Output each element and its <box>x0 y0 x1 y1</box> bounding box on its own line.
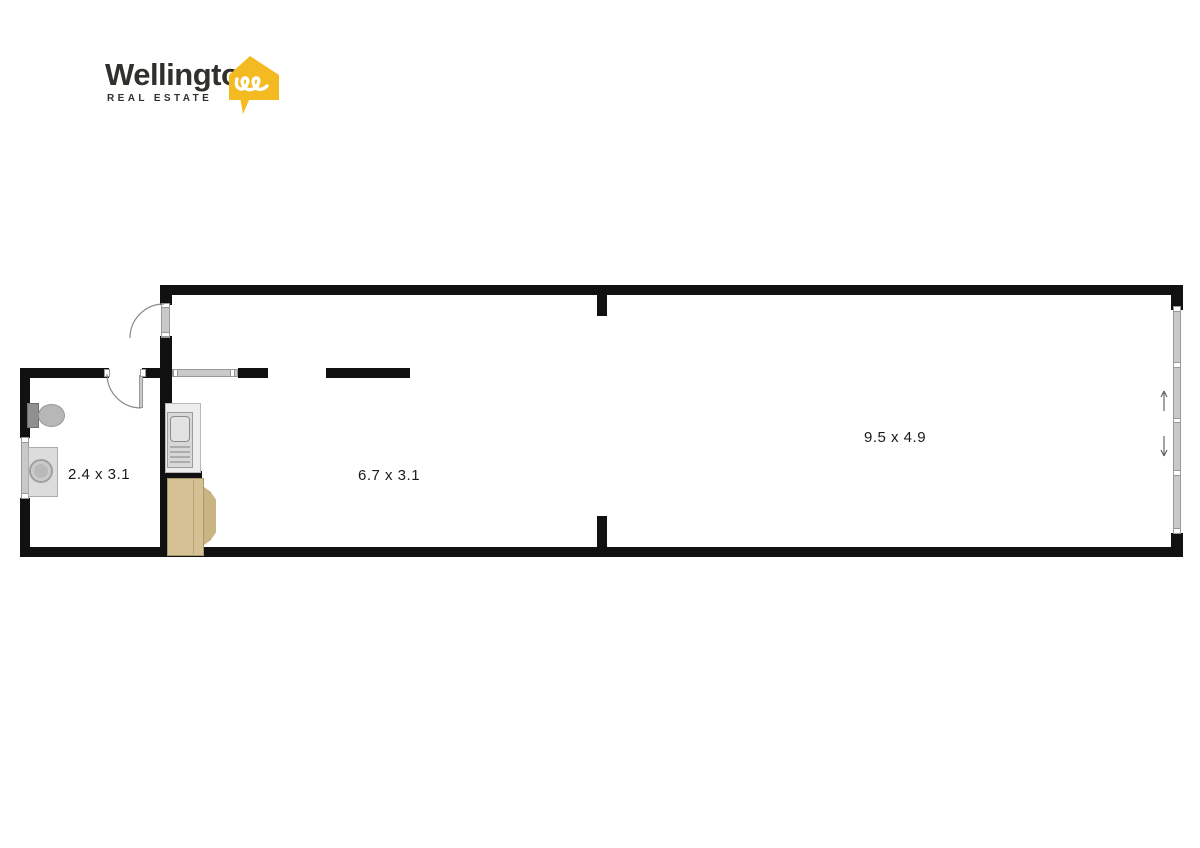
window-mullion <box>1173 528 1181 534</box>
exterior-wall-left-upper <box>160 285 172 305</box>
toilet-bowl <box>38 404 65 427</box>
partition-stub-bottom <box>597 516 607 547</box>
room-dimensions-label: 6.7 x 3.1 <box>358 467 420 484</box>
window-mullion <box>1173 470 1181 476</box>
entry-door-arc <box>130 304 164 338</box>
window-mullion <box>173 369 178 377</box>
kitchen-stove-grill <box>170 446 190 466</box>
kitchen-sink <box>170 416 190 442</box>
annex-wall-top-right <box>142 368 172 378</box>
sofa <box>167 478 204 556</box>
sliding-direction-arrows <box>1161 391 1167 456</box>
floor-plan: 2.4 x 3.1 6.7 x 3.1 9.5 x 4.9 <box>0 0 1200 848</box>
window-mullion <box>1173 306 1181 312</box>
sofa-cushion-line <box>193 480 194 554</box>
interior-wall-segment-a <box>238 368 268 378</box>
annex-wall-left-lower <box>20 498 30 557</box>
window-interior-wall <box>172 369 238 377</box>
door-hinge <box>104 369 110 377</box>
exterior-wall-top <box>160 285 1183 295</box>
washing-machine-drum <box>34 464 48 478</box>
bathroom-door-leaf <box>139 375 143 408</box>
door-hinge <box>161 332 170 337</box>
window-mullion <box>230 369 235 377</box>
door-hinge <box>140 369 146 377</box>
room-dimensions-label: 2.4 x 3.1 <box>68 466 130 483</box>
bathroom-door-arc <box>107 374 141 408</box>
partition-stub-top <box>597 295 607 316</box>
window-mullion <box>21 437 29 443</box>
interior-wall-segment-b <box>326 368 410 378</box>
window-mullion <box>1173 362 1181 368</box>
window-mullion <box>1173 418 1181 423</box>
door-hinge <box>161 303 170 308</box>
room-dimensions-label: 9.5 x 4.9 <box>864 429 926 446</box>
annex-wall-top-left <box>20 368 109 378</box>
sofa-backrest <box>204 487 216 545</box>
exterior-wall-right-bottom <box>1171 533 1183 557</box>
